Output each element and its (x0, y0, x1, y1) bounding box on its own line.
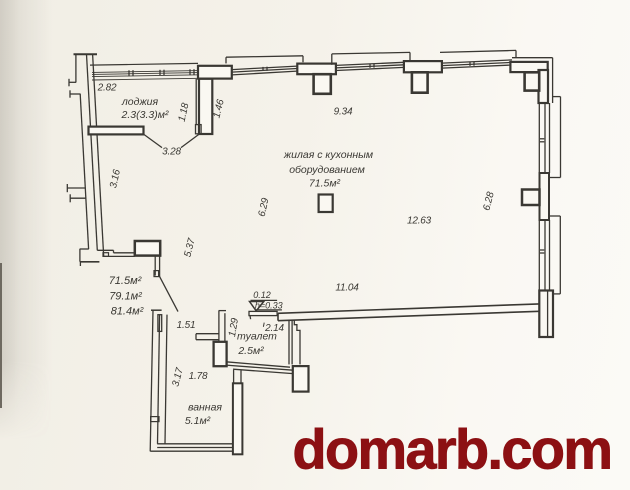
svg-text:1.46: 1.46 (211, 98, 226, 119)
svg-text:1.78: 1.78 (189, 371, 208, 382)
svg-text:5.37: 5.37 (182, 237, 197, 258)
svg-text:3.28: 3.28 (162, 147, 181, 158)
svg-text:6.29: 6.29 (257, 197, 272, 218)
svg-text:71.5м²: 71.5м² (109, 275, 142, 287)
svg-text:туалет: туалет (237, 331, 277, 343)
svg-text:ванная: ванная (188, 402, 222, 414)
svg-text:12.63: 12.63 (407, 216, 432, 227)
svg-text:3.16: 3.16 (108, 168, 123, 189)
svg-text:domarb.com: domarb.com (293, 418, 612, 481)
svg-text:оборудованием: оборудованием (289, 164, 365, 176)
svg-text:71.5м²: 71.5м² (309, 178, 341, 190)
svg-text:6.28: 6.28 (481, 190, 496, 211)
svg-text:лоджия: лоджия (121, 96, 159, 108)
svg-text:h=0.33: h=0.33 (255, 301, 283, 311)
svg-text:2.82: 2.82 (97, 83, 117, 94)
svg-text:2.3(3.3)м²: 2.3(3.3)м² (121, 109, 169, 121)
svg-text:2.5м²: 2.5м² (237, 345, 264, 357)
svg-text:81.4м²: 81.4м² (111, 305, 144, 317)
svg-text:3.17: 3.17 (170, 366, 185, 387)
svg-text:1.51: 1.51 (177, 320, 196, 331)
svg-text:9.34: 9.34 (334, 107, 353, 118)
svg-text:79.1м²: 79.1м² (109, 291, 142, 303)
svg-text:5.1м²: 5.1м² (185, 415, 211, 427)
svg-text:1.18: 1.18 (177, 102, 192, 123)
svg-text:0.12: 0.12 (253, 290, 271, 300)
svg-text:жилая с кухонным: жилая с кухонным (283, 149, 373, 161)
svg-text:11.04: 11.04 (335, 283, 359, 294)
